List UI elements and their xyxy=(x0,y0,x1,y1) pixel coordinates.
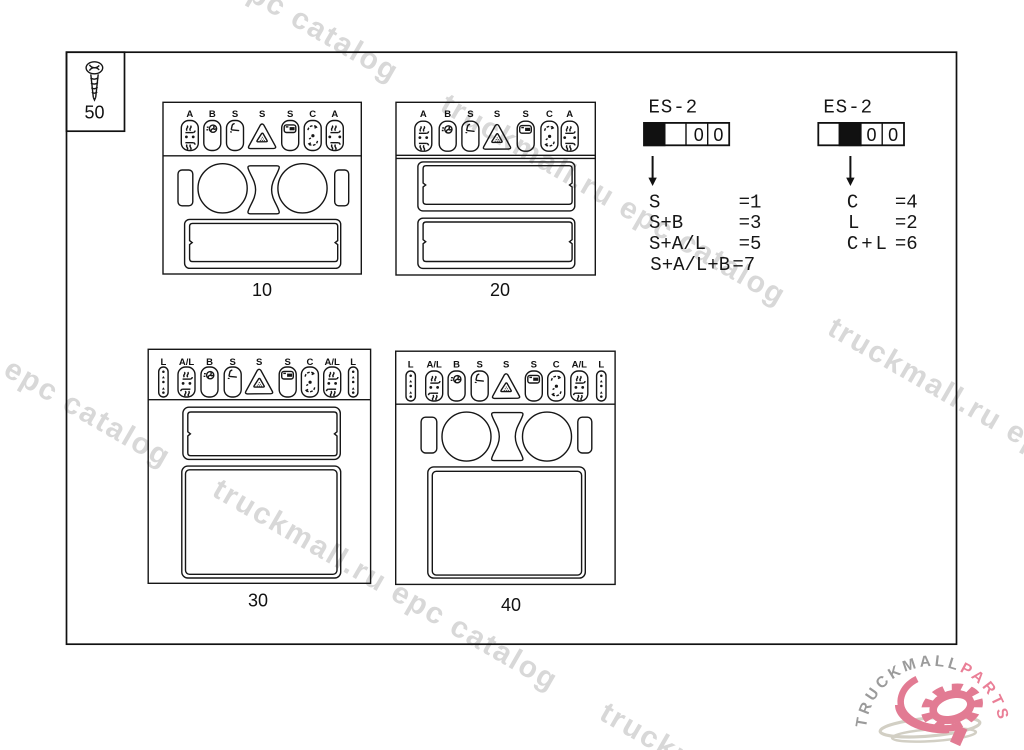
svg-text:A: A xyxy=(420,109,427,120)
svg-text:50: 50 xyxy=(84,103,104,123)
svg-text:S+B: S+B xyxy=(649,212,683,234)
svg-text:S: S xyxy=(287,109,293,120)
svg-text:ES-2: ES-2 xyxy=(823,97,873,119)
svg-text:B: B xyxy=(209,109,216,120)
svg-text:=3: =3 xyxy=(739,212,762,234)
svg-text:A/L: A/L xyxy=(572,360,588,371)
svg-text:=6: =6 xyxy=(895,233,918,255)
svg-text:S: S xyxy=(523,109,529,120)
svg-text:S: S xyxy=(531,360,537,371)
svg-text:40: 40 xyxy=(501,595,521,615)
svg-text:=2: =2 xyxy=(895,212,918,234)
svg-text:S: S xyxy=(259,109,265,120)
svg-text:S: S xyxy=(256,357,262,368)
svg-text:L: L xyxy=(598,360,604,371)
svg-text:L: L xyxy=(408,360,414,371)
svg-text:S+A/L+B: S+A/L+B xyxy=(650,254,730,276)
svg-text:0: 0 xyxy=(694,125,704,145)
svg-text:A/L: A/L xyxy=(427,360,443,371)
svg-text:B: B xyxy=(444,109,451,120)
svg-text:truckmall.ru epc catalog: truckmall.ru epc catalog xyxy=(48,0,405,89)
svg-text:truckmall.ru epc catalog: truckmall.ru epc catalog xyxy=(0,249,177,474)
svg-text:0: 0 xyxy=(888,125,898,145)
svg-text:10: 10 xyxy=(252,280,272,300)
svg-text:A: A xyxy=(566,109,573,120)
svg-text:=4: =4 xyxy=(895,191,918,213)
svg-text:S: S xyxy=(477,360,483,371)
svg-text:B: B xyxy=(453,360,460,371)
svg-text:C: C xyxy=(546,109,553,120)
svg-text:S: S xyxy=(503,360,509,371)
svg-text:S: S xyxy=(494,109,500,120)
svg-text:S+A/L: S+A/L xyxy=(649,233,706,255)
svg-text:=1: =1 xyxy=(739,191,762,213)
svg-text:0: 0 xyxy=(713,125,723,145)
svg-text:0: 0 xyxy=(866,125,876,145)
svg-text:S: S xyxy=(232,109,238,120)
svg-text:C: C xyxy=(309,109,316,120)
svg-text:=5: =5 xyxy=(739,233,762,255)
svg-text:=7: =7 xyxy=(732,254,755,276)
svg-text:C+L: C+L xyxy=(847,233,890,255)
svg-text:20: 20 xyxy=(490,280,510,300)
svg-text:C: C xyxy=(847,191,858,213)
svg-text:L: L xyxy=(848,212,859,234)
svg-text:A: A xyxy=(331,109,338,120)
svg-text:truckmall.ru epc catalog: truckmall.ru epc catalog xyxy=(822,311,1024,536)
svg-text:S: S xyxy=(649,191,660,213)
svg-text:C: C xyxy=(553,360,560,371)
svg-text:A: A xyxy=(186,109,193,120)
svg-text:30: 30 xyxy=(248,591,268,611)
svg-text:S: S xyxy=(467,109,473,120)
svg-text:ES-2: ES-2 xyxy=(649,97,699,119)
